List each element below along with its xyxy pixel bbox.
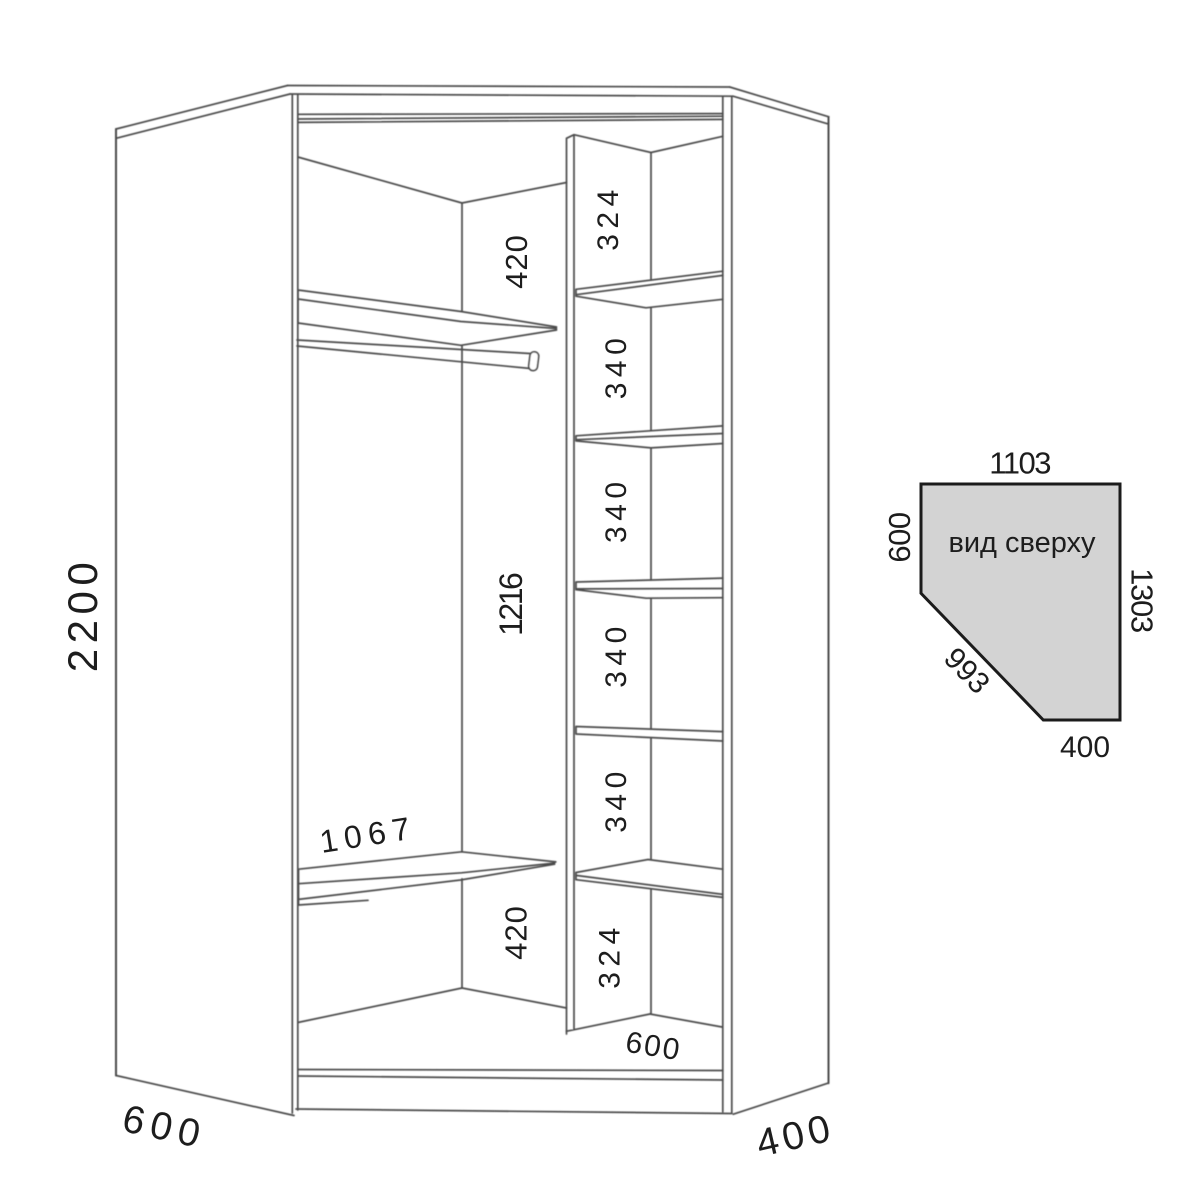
svg-text:420: 420 bbox=[499, 234, 534, 289]
svg-text:600: 600 bbox=[623, 1026, 684, 1067]
svg-text:324: 324 bbox=[594, 922, 627, 989]
svg-text:600: 600 bbox=[119, 1097, 211, 1157]
svg-text:340: 340 bbox=[600, 333, 633, 400]
svg-text:1303: 1303 bbox=[1125, 568, 1160, 632]
svg-text:2200: 2200 bbox=[59, 557, 106, 672]
svg-text:340: 340 bbox=[600, 621, 633, 688]
svg-text:400: 400 bbox=[1060, 731, 1110, 764]
svg-text:324: 324 bbox=[592, 184, 625, 251]
svg-text:1216: 1216 bbox=[493, 573, 529, 636]
svg-text:1067: 1067 bbox=[317, 809, 419, 860]
svg-text:340: 340 bbox=[600, 766, 633, 833]
svg-text:420: 420 bbox=[499, 905, 534, 960]
svg-text:600: 600 bbox=[882, 512, 917, 562]
svg-text:1103: 1103 bbox=[989, 446, 1050, 481]
svg-text:340: 340 bbox=[600, 476, 633, 543]
svg-text:400: 400 bbox=[752, 1106, 838, 1166]
svg-text:вид сверху: вид сверху bbox=[948, 527, 1096, 559]
